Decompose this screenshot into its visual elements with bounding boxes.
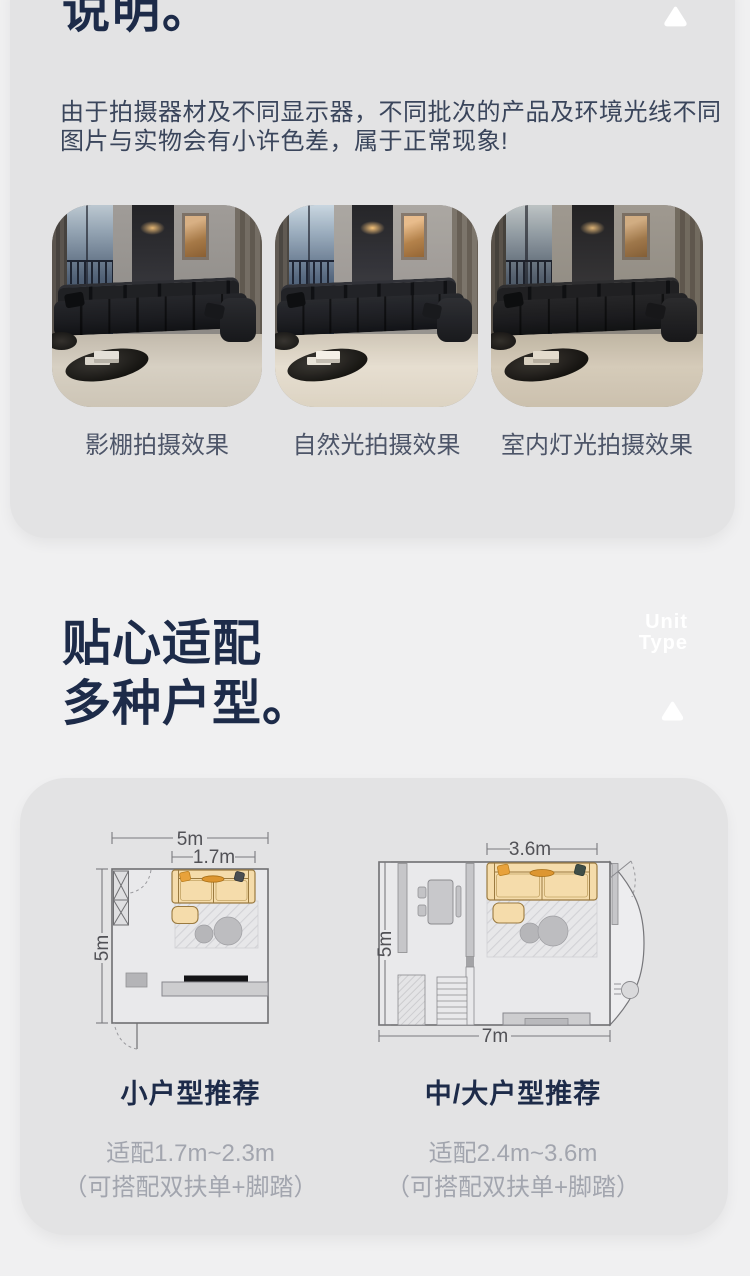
unit-title-line2: 多种户型。 [62, 674, 312, 734]
dim-label-sofa-width: 1.7m [193, 847, 235, 868]
wall-art [182, 213, 209, 259]
wall-lamp-glow [360, 221, 384, 235]
plan-large-note: （可搭配双扶单+脚踏） [368, 1173, 658, 1203]
notice-text-line1: 由于拍摄器材及不同显示器，不同批次的产品及环境光线不同 [60, 98, 722, 128]
sofa-tray [202, 876, 224, 882]
ottoman [172, 907, 198, 924]
living-room-scene [52, 205, 262, 407]
plan-small-title: 小户型推荐 [52, 1078, 329, 1110]
sofa-tray [530, 870, 554, 877]
plan-large-title: 中/大户型推荐 [368, 1078, 658, 1110]
brand-drop-icon [662, 5, 689, 29]
notice-text-line2: 图片与实物会有小许色差，属于正常现象! [60, 127, 508, 157]
pillow-orange [179, 871, 191, 882]
floorplan-small: 5m 1.7m 5m [85, 820, 285, 1065]
plan-large-range: 适配2.4m~3.6m [368, 1139, 658, 1169]
plan-small-note: （可搭配双扶单+脚踏） [52, 1173, 329, 1203]
sofa-topview [487, 863, 597, 900]
partition-block [466, 957, 474, 967]
watermark-line2: Type [639, 633, 688, 654]
dim-label-sofa-width: 3.6m [509, 839, 551, 860]
coffee-table-small [520, 923, 540, 943]
pillow-dark [234, 871, 245, 882]
sofa-topview [172, 870, 255, 903]
partition-wall [466, 864, 474, 957]
wall-lamp-glow [580, 221, 605, 235]
tv [184, 976, 248, 983]
plan-small-label: 小户型推荐 适配1.7m~2.3m （可搭配双扶单+脚踏） [52, 1078, 329, 1203]
product-detail-page: 说明。 由于拍摄器材及不同显示器，不同批次的产品及环境光线不同 图片与实物会有小… [0, 0, 750, 1276]
pillow-dark [574, 864, 586, 876]
watermark-line1: Unit [639, 612, 688, 633]
plan-large-label: 中/大户型推荐 适配2.4m~3.6m （可搭配双扶单+脚踏） [368, 1078, 658, 1203]
unit-type-watermark: Unit Type [639, 612, 688, 654]
photo-caption-indoor: 室内灯光拍摄效果 [491, 432, 703, 460]
floorplan-large: 3.6m 5m 7m [372, 820, 657, 1065]
notice-title: 说明。 [62, 0, 212, 40]
unit-title-line1: 贴心适配 [62, 614, 312, 674]
speaker [126, 973, 147, 987]
photo-natural-light [275, 205, 478, 407]
brand-drop-icon [660, 700, 685, 723]
tv-console [162, 982, 268, 996]
dim-label-room-depth: 5m [92, 935, 113, 961]
wardrobe [114, 871, 129, 925]
living-room-scene [491, 205, 703, 407]
coffee-table-large [214, 917, 242, 945]
coffee-table-large [538, 916, 568, 946]
coffee-table-small [195, 925, 213, 943]
dim-label-room-width: 7m [482, 1026, 508, 1047]
photo-caption-studio: 影棚拍摄效果 [52, 432, 262, 460]
plan-small-range: 适配1.7m~2.3m [52, 1139, 329, 1169]
living-room-scene [275, 205, 478, 407]
photo-studio [52, 205, 262, 407]
dim-label-room-depth: 5m [375, 931, 396, 957]
tv-console-inset [525, 1019, 568, 1026]
wall-lamp-glow [140, 221, 165, 235]
wall-art [622, 213, 650, 259]
pillow-orange [497, 864, 510, 876]
wall-cabinet [398, 864, 407, 953]
photo-indoor-light [491, 205, 703, 407]
wall-art [401, 213, 427, 259]
ottoman [493, 903, 524, 923]
unit-section-title: 贴心适配 多种户型。 [62, 614, 312, 734]
door-swing-bottom [114, 1023, 137, 1049]
photo-caption-natural: 自然光拍摄效果 [275, 432, 478, 460]
